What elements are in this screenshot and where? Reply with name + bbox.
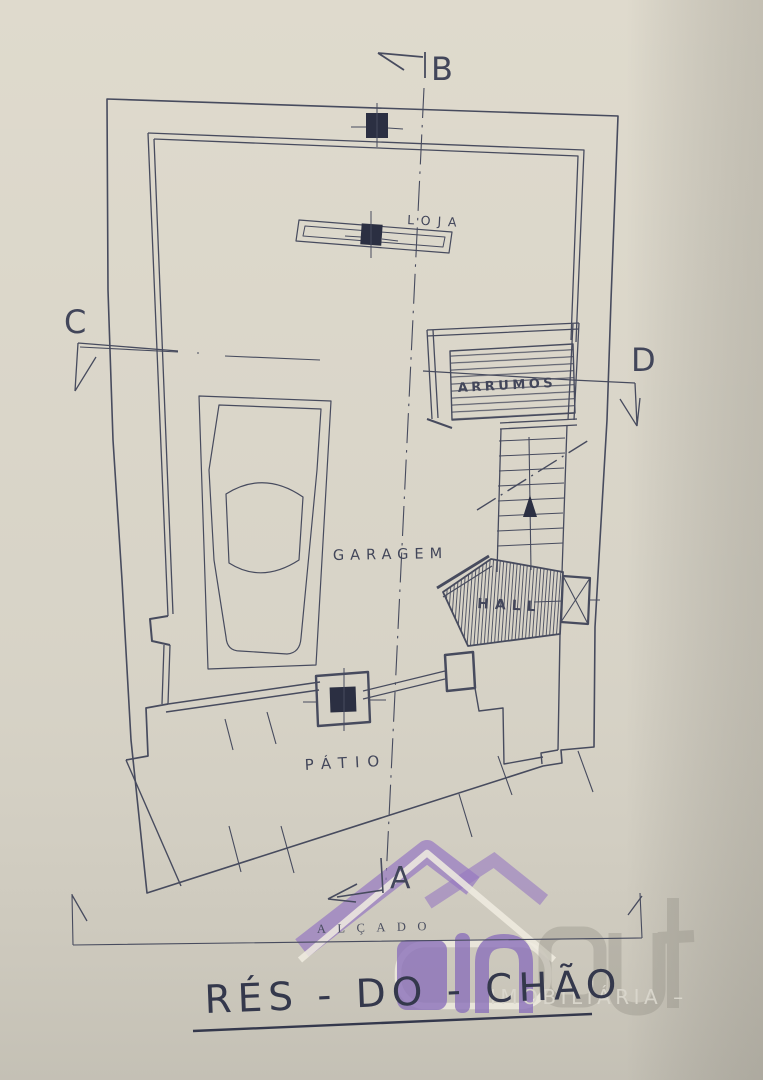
floor-plan-drawing: IMOBILIÁRIA – LOJA ARRUMOS GARAGEM HALL … [0,0,763,1080]
room-label-garagem: GARAGEM [333,546,448,564]
section-letter-d: D [631,341,656,379]
room-label-hall: HALL [477,596,542,615]
room-label-loja: LOJA [407,212,464,230]
column-patio [330,687,357,713]
scanned-floor-plan-page: IMOBILIÁRIA – LOJA ARRUMOS GARAGEM HALL … [0,0,763,1080]
section-letter-a: A [390,861,411,896]
paper-shading-right-edge [0,0,763,1080]
section-letter-c: C [64,303,86,341]
section-letter-b: B [431,50,453,88]
